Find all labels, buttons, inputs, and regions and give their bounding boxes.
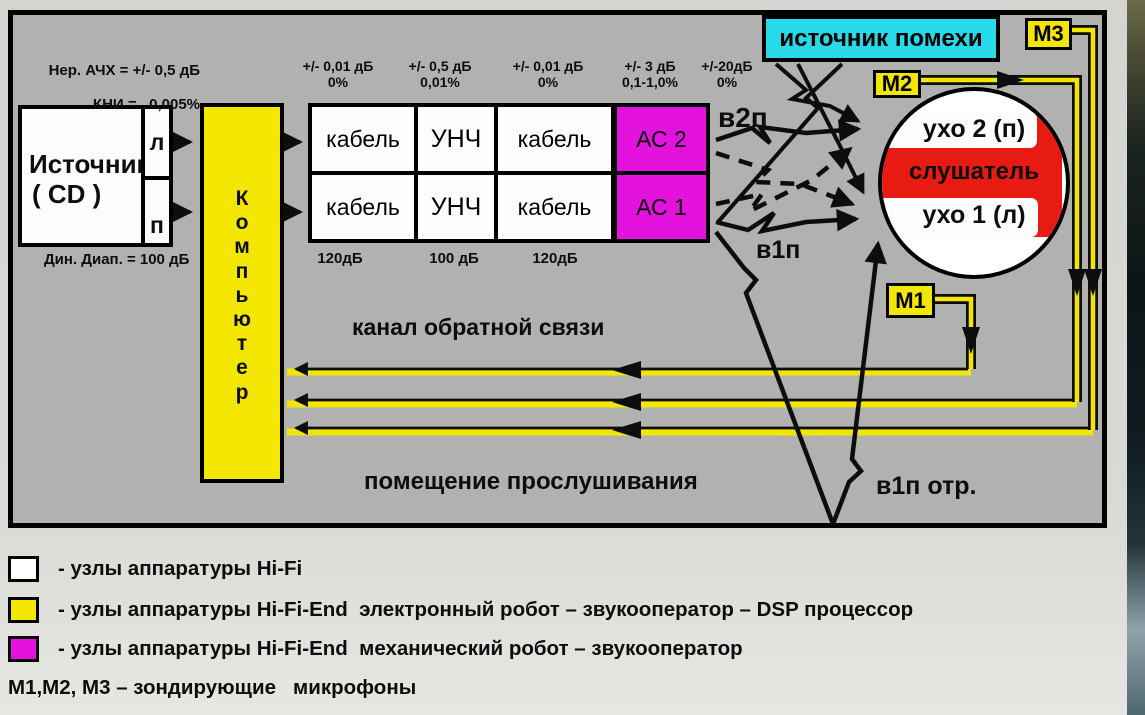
legend-item-hifi-end-dsp: - узлы аппаратуры Hi-Fi-End электронный …: [58, 598, 913, 622]
source-spec: Нер. АЧХ = +/- 0,5 дБ КНИ = 0,005%: [28, 62, 200, 113]
cable-db-1: 120дБ: [300, 250, 380, 267]
channel-right-label: п: [145, 194, 169, 257]
ear-top-label: ухо 2 (п): [882, 115, 1066, 144]
source-spec-line2: КНИ = 0,005%: [93, 96, 200, 113]
channel-left-label: л: [145, 109, 169, 176]
speaker-block-2: АС 2: [613, 103, 710, 175]
computer-letter: е: [236, 356, 248, 379]
path-v2p-label: в2п: [718, 102, 768, 134]
amp-db: 100 дБ: [414, 250, 494, 267]
legend-swatch-hifi-end-mech: [8, 636, 39, 662]
computer-letter: т: [237, 332, 247, 355]
speaker-block-1: АС 1: [613, 171, 710, 243]
source-channel-left: л: [141, 105, 173, 180]
chain-spec-3: +/- 0,01 дБ0%: [498, 58, 598, 90]
legend-swatch-hifi-end-dsp: [8, 597, 39, 623]
source-spec-line1: Нер. АЧХ = +/- 0,5 дБ: [49, 62, 200, 79]
listener-label: слушатель: [882, 158, 1066, 186]
source-subtitle: ( CD ): [32, 179, 101, 210]
computer-block: К о м п ь ю т е р: [200, 103, 284, 483]
legend-item-hifi-end-mech: - узлы аппаратуры Hi-Fi-End механический…: [58, 637, 743, 661]
feedback-channel-label: канал обратной связи: [352, 314, 604, 341]
legend-item-hifi: - узлы аппаратуры Hi-Fi: [58, 557, 302, 581]
cable-db-2: 120дБ: [515, 250, 595, 267]
computer-letter: п: [236, 260, 249, 283]
path-v1p-refl-label: в1п отр.: [876, 472, 976, 501]
computer-letter: К: [236, 187, 249, 210]
computer-letter: м: [234, 235, 250, 258]
mic-m2-block: М2: [873, 70, 921, 98]
computer-letter: ь: [236, 284, 249, 307]
computer-letter: ю: [233, 308, 251, 331]
chain-spec-2: +/- 0,5 дБ0,01%: [390, 58, 490, 90]
path-v1p-label: в1п: [756, 236, 800, 265]
source-dynamic-range: Дин. Диап. = 100 дБ: [44, 251, 189, 268]
source-channel-right: п: [141, 176, 173, 247]
amp-block-2: УНЧ: [414, 171, 498, 243]
cable-block-2: кабель: [494, 103, 615, 175]
slide: Нер. АЧХ = +/- 0,5 дБ КНИ = 0,005% Источ…: [0, 0, 1145, 715]
source-title: Источник: [29, 149, 150, 180]
ear-bottom-label: ухо 1 (л): [882, 201, 1066, 230]
mic-m3-block: М3: [1025, 18, 1072, 50]
legend-swatch-hifi: [8, 556, 39, 582]
listener-circle: ухо 2 (п) слушатель ухо 1 (л): [878, 87, 1070, 279]
chain-spec-5: +/-20дБ0%: [677, 58, 777, 90]
chain-spec-1: +/- 0,01 дБ0%: [288, 58, 388, 90]
computer-letter: о: [236, 211, 249, 234]
mic-m1-block: М1: [886, 283, 935, 318]
room-label: помещение прослушивания: [364, 468, 698, 496]
video-edge-strip: [1127, 0, 1145, 715]
cable-block-3: кабель: [308, 171, 418, 243]
cable-block-1: кабель: [308, 103, 418, 175]
legend-mics-note: М1,М2, М3 – зондирующие микрофоны: [8, 676, 416, 700]
computer-letter: р: [236, 381, 249, 404]
cable-block-4: кабель: [494, 171, 615, 243]
amp-block-1: УНЧ: [414, 103, 498, 175]
noise-source-block: источник помехи: [762, 15, 1000, 62]
